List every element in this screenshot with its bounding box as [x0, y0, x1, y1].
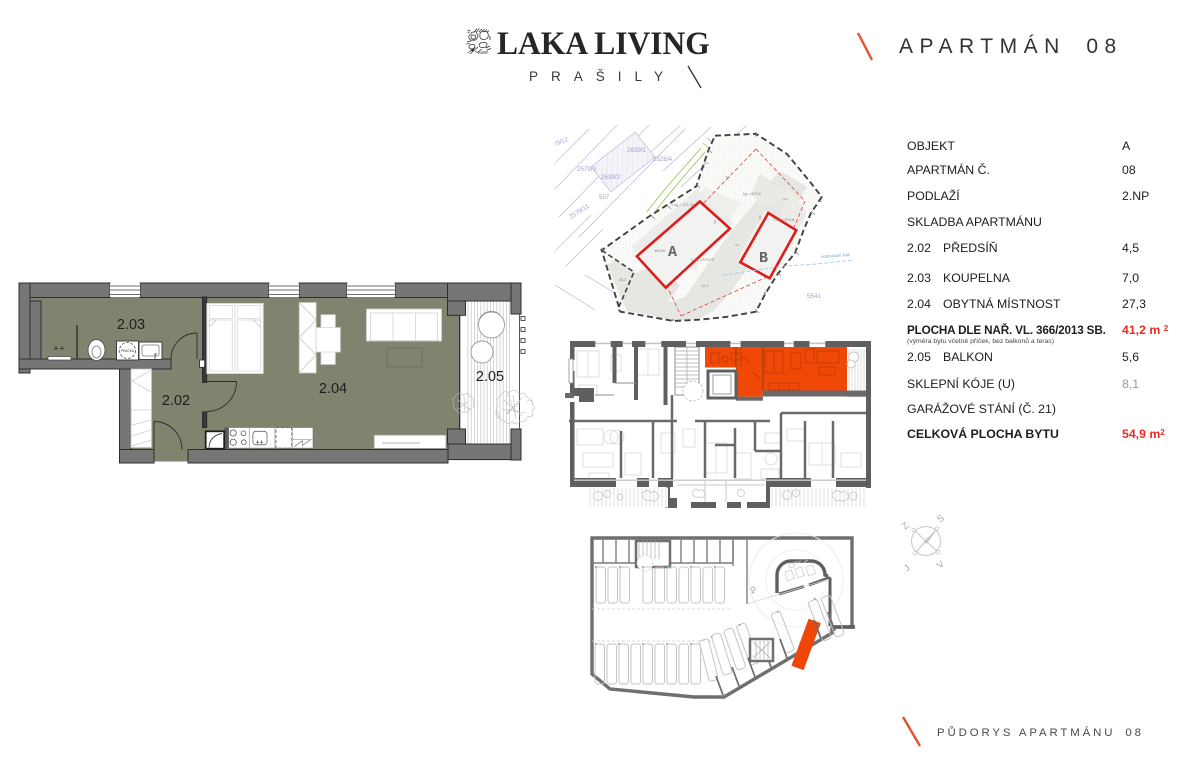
svg-text:507: 507: [599, 194, 610, 201]
svg-text:79/12: 79/12: [555, 136, 570, 148]
svg-text:2.04: 2.04: [319, 381, 347, 397]
svg-text:2.02: 2.02: [162, 393, 190, 409]
svg-text:2.03: 2.03: [117, 317, 145, 333]
svg-text:2.05: 2.05: [476, 369, 504, 385]
svg-text:1 kg = 874,8: 1 kg = 874,8: [773, 218, 794, 222]
svg-text:kg = 870,6: kg = 870,6: [743, 192, 761, 196]
svg-text:2579/3: 2579/3: [577, 166, 596, 173]
svg-text:12,4: 12,4: [701, 284, 708, 288]
svg-text:1 kg = 876,70: 1 kg = 876,70: [691, 258, 714, 262]
svg-text:V: V: [935, 558, 947, 571]
svg-text:2639/2: 2639/2: [601, 174, 620, 181]
svg-text:35,2: 35,2: [619, 278, 626, 282]
svg-text:PRAČKA: PRAČKA: [121, 348, 135, 353]
svg-text:B: B: [759, 250, 768, 267]
svg-text:vodovodní řad: vodovodní řad: [821, 252, 850, 259]
svg-text:366,50: 366,50: [654, 249, 666, 253]
svg-text:A: A: [668, 244, 677, 261]
svg-text:Z: Z: [900, 520, 912, 532]
svg-text:5541: 5541: [807, 293, 821, 300]
svg-text:S: S: [935, 513, 947, 526]
svg-text:2528/4: 2528/4: [653, 156, 672, 163]
svg-text:2639/1: 2639/1: [627, 147, 646, 154]
svg-text:J: J: [902, 563, 913, 575]
svg-text:2579/11: 2579/11: [568, 203, 591, 221]
svg-text:1 kg = 871,35: 1 kg = 871,35: [671, 203, 694, 207]
